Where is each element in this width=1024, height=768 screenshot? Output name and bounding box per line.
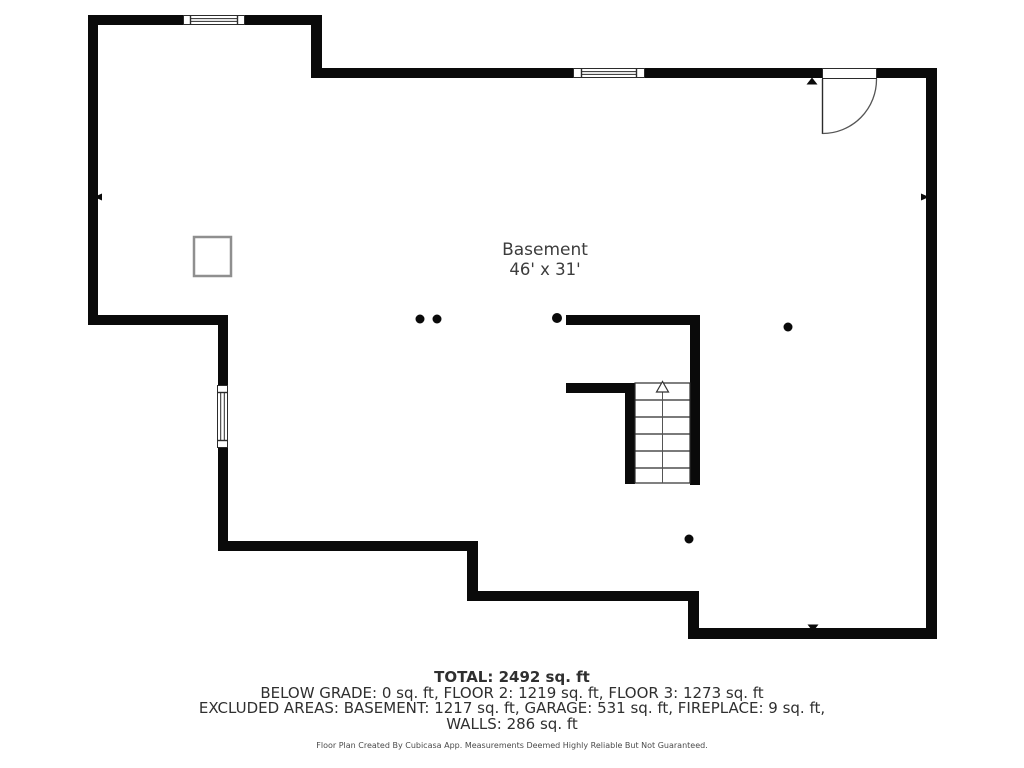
door-swing-arc — [823, 79, 877, 134]
post-dot — [552, 313, 562, 323]
post-dot — [416, 315, 425, 324]
room-label: Basement 46' x 31' — [395, 241, 695, 279]
room-dimensions: 46' x 31' — [395, 260, 695, 279]
post-dot — [685, 535, 694, 544]
post-dot — [784, 323, 793, 332]
floor-plan-page: Basement 46' x 31' TOTAL: 2492 sq. ft BE… — [0, 0, 1024, 768]
marker-top-icon — [807, 78, 818, 85]
area-summary: TOTAL: 2492 sq. ft BELOW GRADE: 0 sq. ft… — [112, 670, 912, 733]
summary-walls: WALLS: 286 sq. ft — [112, 717, 912, 733]
floor-plan-drawing — [0, 0, 1024, 768]
wall-right — [926, 68, 937, 639]
wall-left-step — [88, 315, 228, 325]
door-top-right — [823, 69, 877, 135]
wall-stair-mid — [566, 383, 635, 393]
window-top — [184, 16, 245, 25]
window-left — [218, 386, 228, 448]
window-top-middle — [574, 69, 645, 78]
post-dot — [433, 315, 442, 324]
wall-bottom-left — [218, 541, 478, 551]
wall-stair-left — [625, 383, 635, 484]
wall-bottom-mid — [467, 591, 699, 601]
exterior-walls — [88, 15, 937, 639]
wall-stair-top — [566, 315, 700, 325]
wall-stair-right — [690, 315, 700, 485]
door-opening — [823, 69, 877, 79]
room-name: Basement — [395, 241, 695, 260]
wall-left-upper — [88, 15, 98, 325]
staircase — [635, 382, 690, 484]
fixture-box — [194, 237, 231, 276]
support-posts — [416, 313, 793, 544]
footer-disclaimer: Floor Plan Created By Cubicasa App. Meas… — [112, 741, 912, 751]
